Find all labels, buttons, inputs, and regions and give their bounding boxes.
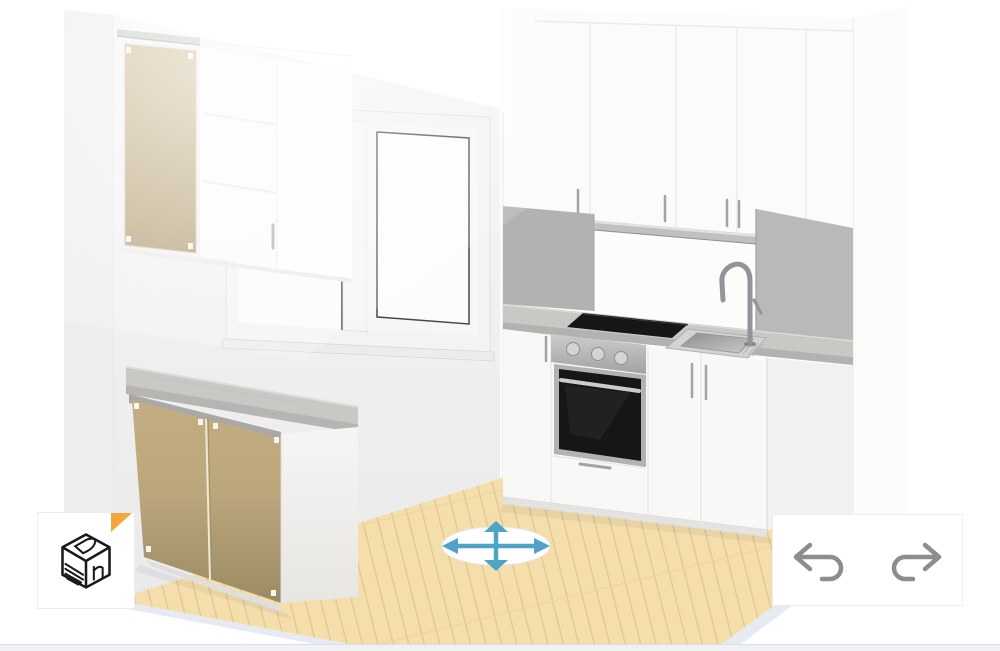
undo-button[interactable] [788,532,852,588]
backsplash-right-panel [756,209,853,353]
hinge-plate [146,546,151,552]
history-panel [772,514,963,606]
end-panel [767,358,853,530]
canvas-bottom-bar [0,644,1000,651]
peninsula-side-panel [281,427,358,603]
hinge-plate [198,419,203,425]
planner-window [0,0,1000,651]
oven-knob [592,348,605,361]
hinge-plate [134,403,139,409]
hinge-plate [271,590,276,596]
oven-knob [615,352,628,365]
undo-arrow-icon [788,532,852,588]
view-mode-button[interactable] [37,512,135,609]
right-wall-edge [853,7,908,528]
redo-button[interactable] [883,532,947,588]
built-in-oven[interactable] [551,334,646,467]
cube-3d-logo-icon [38,513,134,608]
hinge-plate [274,437,279,443]
redo-arrow-icon [883,532,947,588]
backsplash-left-panel [503,206,594,311]
oven-knob [567,343,580,356]
hinge-plate [213,423,218,429]
wall-cabinets-front [534,21,853,243]
